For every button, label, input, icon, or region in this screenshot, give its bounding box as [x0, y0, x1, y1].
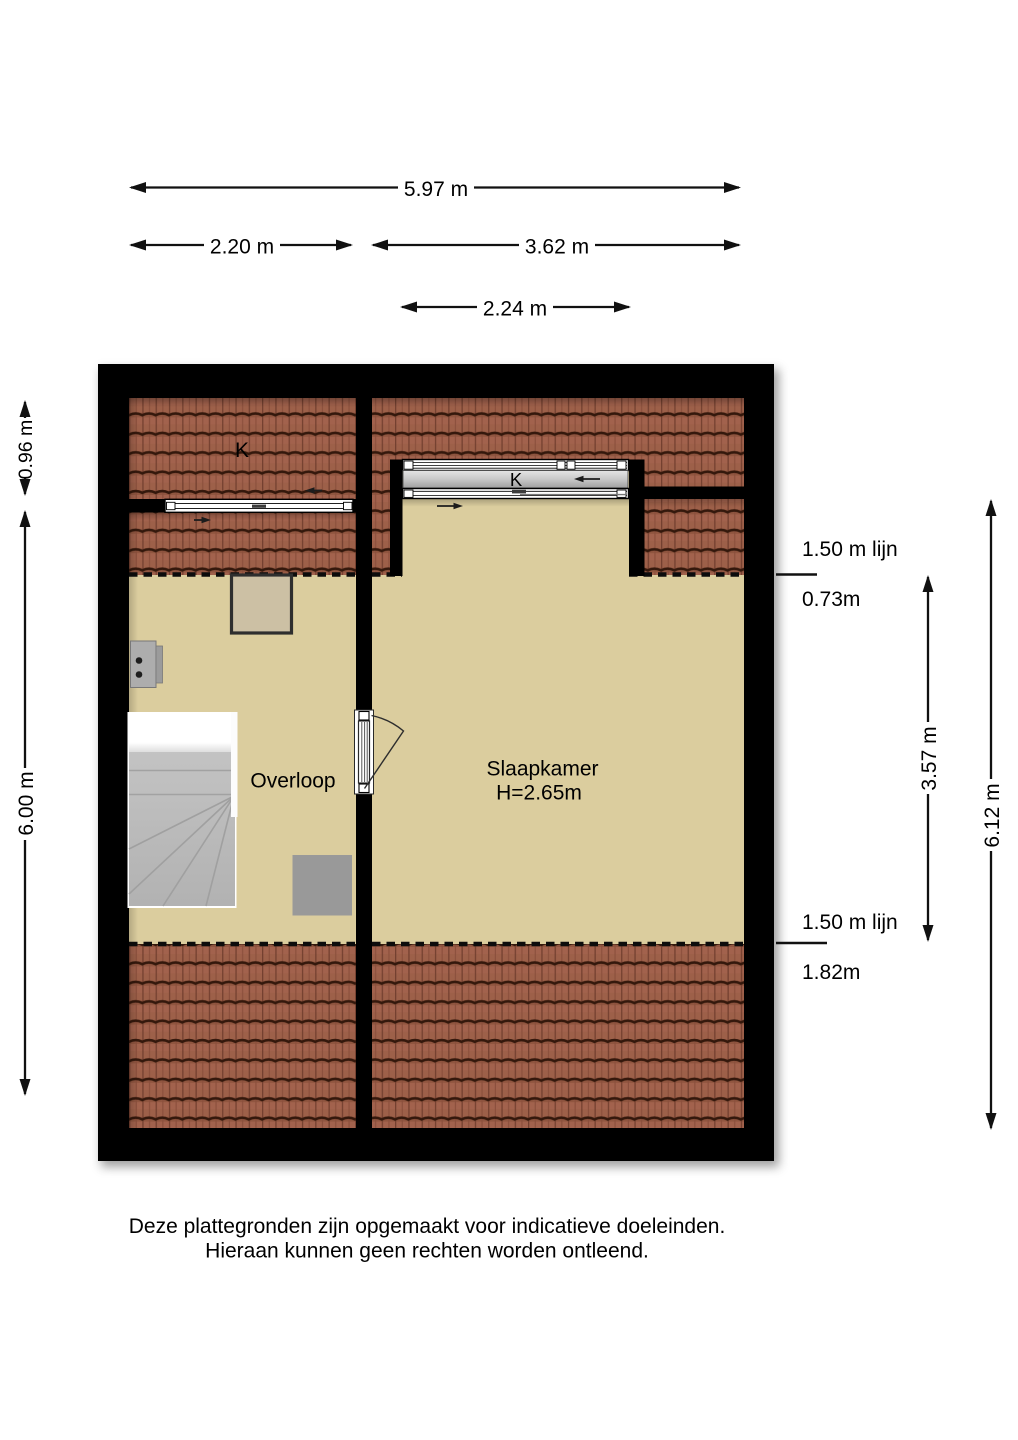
svg-text:Deze plattegronden zijn opgema: Deze plattegronden zijn opgemaakt voor i…	[129, 1215, 726, 1238]
svg-text:0.96 m: 0.96 m	[15, 420, 37, 480]
svg-text:K: K	[510, 469, 523, 490]
svg-text:K: K	[235, 439, 249, 462]
svg-text:3.62 m: 3.62 m	[525, 236, 589, 259]
svg-text:Slaapkamer: Slaapkamer	[486, 758, 598, 781]
svg-text:H=2.65m: H=2.65m	[496, 782, 582, 805]
svg-text:3.57 m: 3.57 m	[918, 726, 941, 790]
svg-text:1.50 m lijn: 1.50 m lijn	[802, 911, 898, 934]
svg-text:1.50 m lijn: 1.50 m lijn	[802, 538, 898, 561]
svg-text:0.73m: 0.73m	[802, 588, 860, 611]
svg-text:6.00 m: 6.00 m	[15, 771, 38, 835]
svg-text:2.24 m: 2.24 m	[483, 298, 547, 321]
svg-text:1.82m: 1.82m	[802, 961, 860, 984]
svg-text:2.20 m: 2.20 m	[210, 236, 274, 259]
svg-text:Hieraan kunnen geen rechten wo: Hieraan kunnen geen rechten worden ontle…	[205, 1240, 649, 1263]
svg-text:Overloop: Overloop	[250, 770, 335, 793]
svg-text:5.97 m: 5.97 m	[404, 178, 468, 201]
svg-text:6.12 m: 6.12 m	[981, 783, 1004, 847]
